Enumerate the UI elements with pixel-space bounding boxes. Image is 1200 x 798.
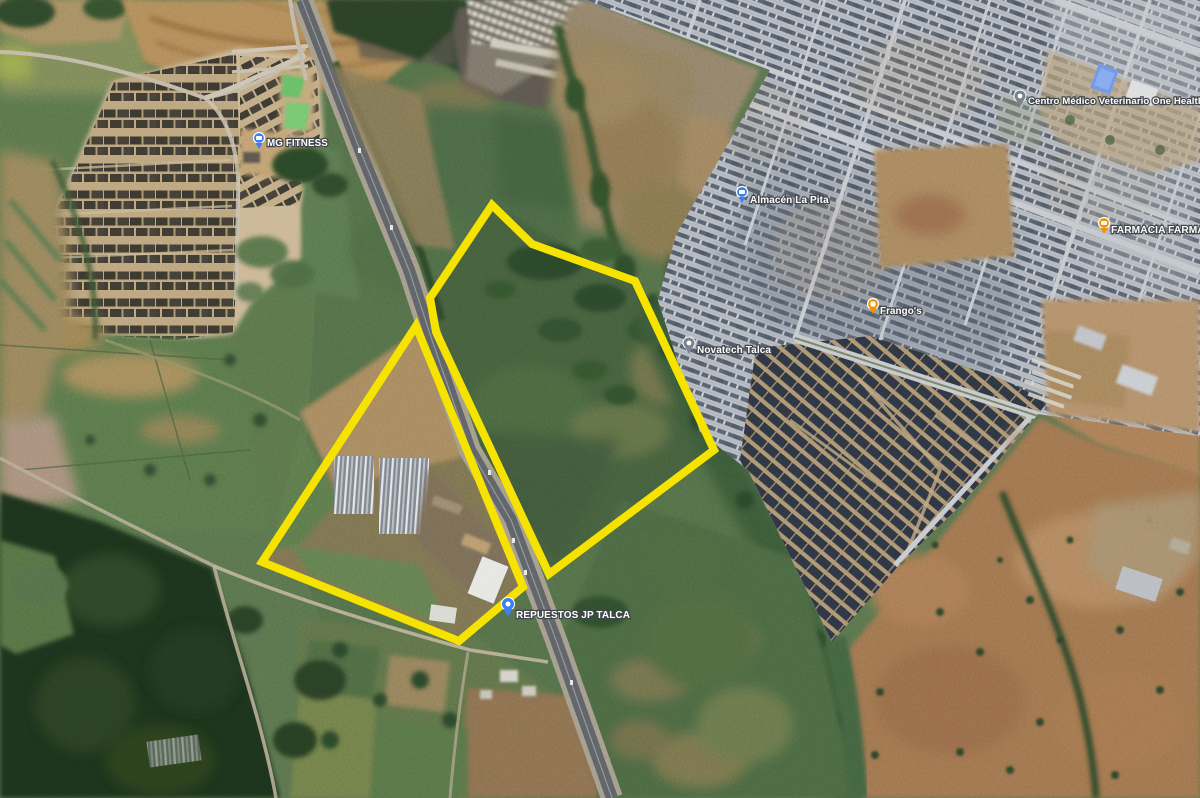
svg-text:REPUESTOS JP TALCA: REPUESTOS JP TALCA [516,610,630,621]
svg-text:Almacén La Pita: Almacén La Pita [750,195,829,206]
svg-text:Novatech Talca: Novatech Talca [697,345,771,356]
svg-text:FARMACIA FARMA V: FARMACIA FARMA V [1111,225,1200,236]
svg-text:Centro Médico Veterinario One: Centro Médico Veterinario One Health [1028,96,1200,107]
svg-text:Frango's: Frango's [880,306,922,317]
svg-text:MG FITNESS: MG FITNESS [267,138,328,149]
